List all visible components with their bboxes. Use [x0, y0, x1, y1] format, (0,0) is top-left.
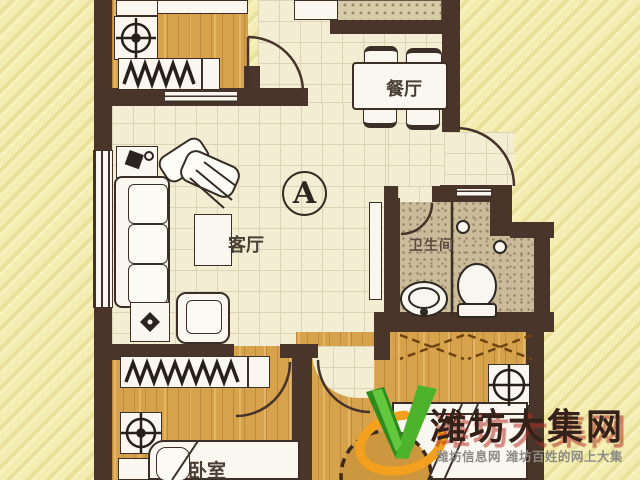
balcony-door-leaf: [294, 0, 338, 20]
pass-through-window: [164, 91, 238, 103]
coffee-table: [194, 214, 232, 266]
bathroom-floor: [400, 200, 490, 320]
wall-bath-bottom: [374, 312, 554, 332]
wall-kitchen-right: [244, 66, 260, 106]
wall-picture: [116, 146, 158, 178]
pillow: [156, 447, 190, 480]
radiator2-side: [248, 356, 270, 388]
watermark-site-name: 潍坊大集网: [430, 398, 625, 450]
wall-bath-right: [534, 236, 550, 320]
kitchen-sink: [116, 0, 158, 16]
sofa-cushion: [128, 224, 168, 264]
unit-label: A: [282, 171, 327, 216]
sofa-cushion: [128, 264, 168, 304]
kitchen-counter: [156, 0, 248, 14]
bath-door-threshold: [398, 186, 434, 202]
radiator1-box: [118, 58, 202, 90]
sofa-cushion: [128, 184, 168, 224]
entry-floor: [444, 132, 514, 188]
stove-box: [114, 16, 158, 60]
bedroom-label: 卧室: [188, 456, 226, 480]
radiator1-side: [202, 58, 220, 90]
living-window: [93, 150, 113, 308]
dining-room-label: 餐厅: [386, 75, 422, 101]
sofa: [114, 176, 170, 308]
bathroom-label: 卫生间: [409, 235, 454, 255]
wall-bedroom2-stub: [374, 330, 390, 360]
wall-bath-left: [384, 198, 400, 320]
bathroom-floor-ext: [490, 236, 534, 320]
bathroom-window: [456, 188, 492, 198]
floorplan-image: A 餐厅 客厅 卫生间 卧室 潍坊大集网 潍坊信息网 潍坊百姓的网上大集: [0, 0, 640, 480]
balcony-hatch: [332, 0, 442, 22]
wall-bath-step-v: [490, 188, 512, 236]
side-table: [130, 302, 170, 342]
living-room-label: 客厅: [228, 231, 264, 257]
armchair: [176, 292, 230, 344]
watermark-tagline: 潍坊信息网 潍坊百姓的网上大集: [436, 446, 623, 465]
radiator2-box: [120, 356, 248, 388]
bathroom-sliding-leaf: [369, 202, 382, 300]
wall-balcony: [330, 20, 444, 34]
armchair-cushion: [186, 300, 222, 334]
